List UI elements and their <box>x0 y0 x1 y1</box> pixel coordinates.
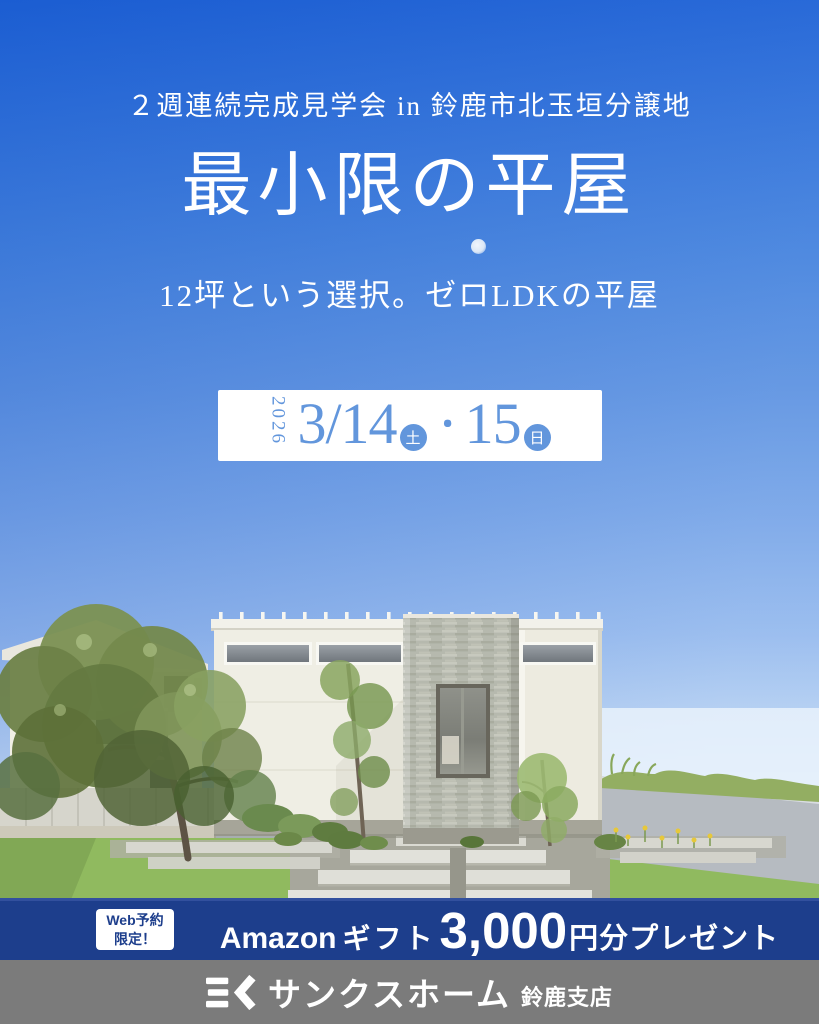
gift-word: ギフト <box>343 917 436 957</box>
main-title: 最小限の平屋 <box>0 147 819 228</box>
date-day1: 3/14 <box>297 395 396 457</box>
date-day2-weekday-badge: 日 <box>524 424 551 451</box>
moon-icon <box>471 239 486 254</box>
web-reservation-badge: Web予約 限定！ <box>96 909 174 950</box>
gift-suffix: 円分プレゼント <box>569 915 779 957</box>
date-day2: 15 <box>465 395 521 457</box>
date-year: 2026 <box>268 396 287 456</box>
date-box: 2026 3/14 土 ・ 15 日 <box>218 390 602 461</box>
branch-name: 鈴鹿支店 <box>521 980 613 1012</box>
badge-line1: Web予約 <box>106 911 163 929</box>
sunkus-home-logo-icon <box>206 975 258 1010</box>
company-name: サンクスホーム <box>268 968 511 1016</box>
footer: サンクスホーム 鈴鹿支店 <box>0 960 819 1024</box>
gift-amount: 3,000 <box>440 905 568 956</box>
house-rendering <box>0 590 819 902</box>
date-day1-weekday-badge: 土 <box>400 424 427 451</box>
subtitle: 12坪という選択。ゼロLDKの平屋 <box>0 270 819 315</box>
flyer-poster: ２週連続完成見学会 in 鈴鹿市北玉垣分譲地 最小限の平屋 12坪という選択。ゼ… <box>0 0 819 1024</box>
badge-line2: 限定！ <box>114 930 156 948</box>
event-headline: ２週連続完成見学会 in 鈴鹿市北玉垣分譲地 <box>0 84 819 123</box>
date-separator: ・ <box>433 400 463 444</box>
gift-offer-text: Amazon ギフト 3,000 円分プレゼント <box>185 905 814 957</box>
gift-banner: Web予約 限定！ Amazon ギフト 3,000 円分プレゼント <box>0 898 819 960</box>
gift-brand: Amazon <box>220 922 337 956</box>
